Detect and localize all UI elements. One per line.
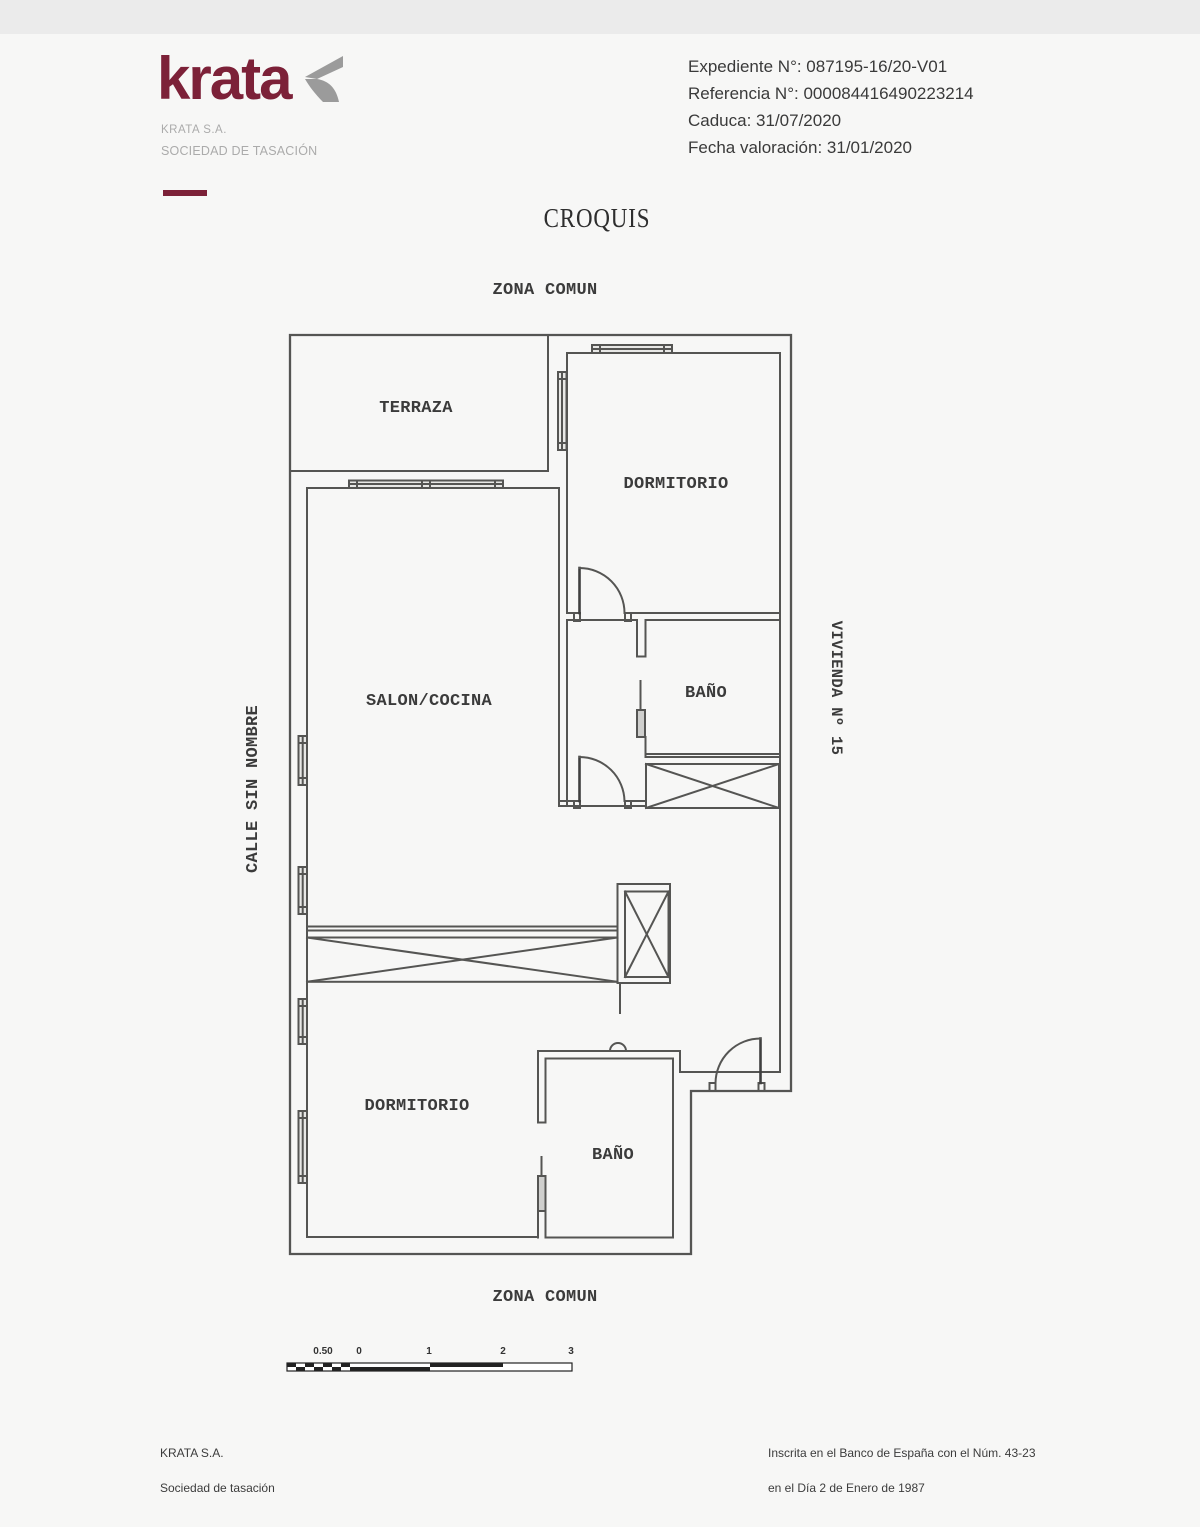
svg-text:VIVIENDA Nº 15: VIVIENDA Nº 15	[827, 621, 845, 755]
svg-text:3: 3	[568, 1346, 574, 1357]
svg-text:BAÑO: BAÑO	[592, 1144, 634, 1165]
svg-text:ZONA COMUN: ZONA COMUN	[492, 281, 597, 300]
svg-text:0.50: 0.50	[313, 1346, 333, 1357]
svg-text:1: 1	[426, 1346, 432, 1357]
svg-text:TERRAZA: TERRAZA	[379, 399, 453, 418]
svg-text:2: 2	[500, 1346, 506, 1357]
svg-text:DORMITORIO: DORMITORIO	[364, 1097, 469, 1116]
svg-text:SALON/COCINA: SALON/COCINA	[366, 692, 493, 711]
svg-text:ZONA COMUN: ZONA COMUN	[492, 1288, 597, 1307]
svg-text:0: 0	[356, 1346, 362, 1357]
svg-text:DORMITORIO: DORMITORIO	[623, 475, 728, 494]
svg-text:CALLE SIN NOMBRE: CALLE SIN NOMBRE	[244, 705, 263, 873]
svg-text:BAÑO: BAÑO	[685, 682, 727, 703]
